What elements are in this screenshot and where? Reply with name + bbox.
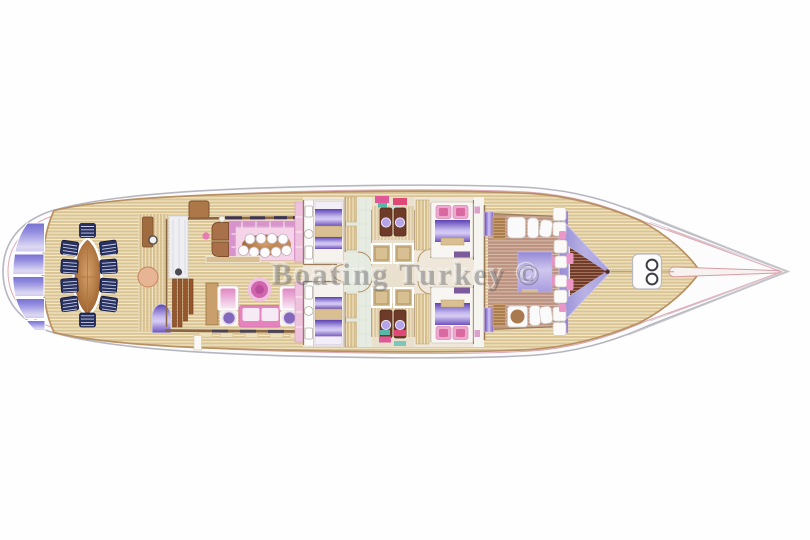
svg-text:Boating Turkey ©: Boating Turkey © [271,257,541,291]
